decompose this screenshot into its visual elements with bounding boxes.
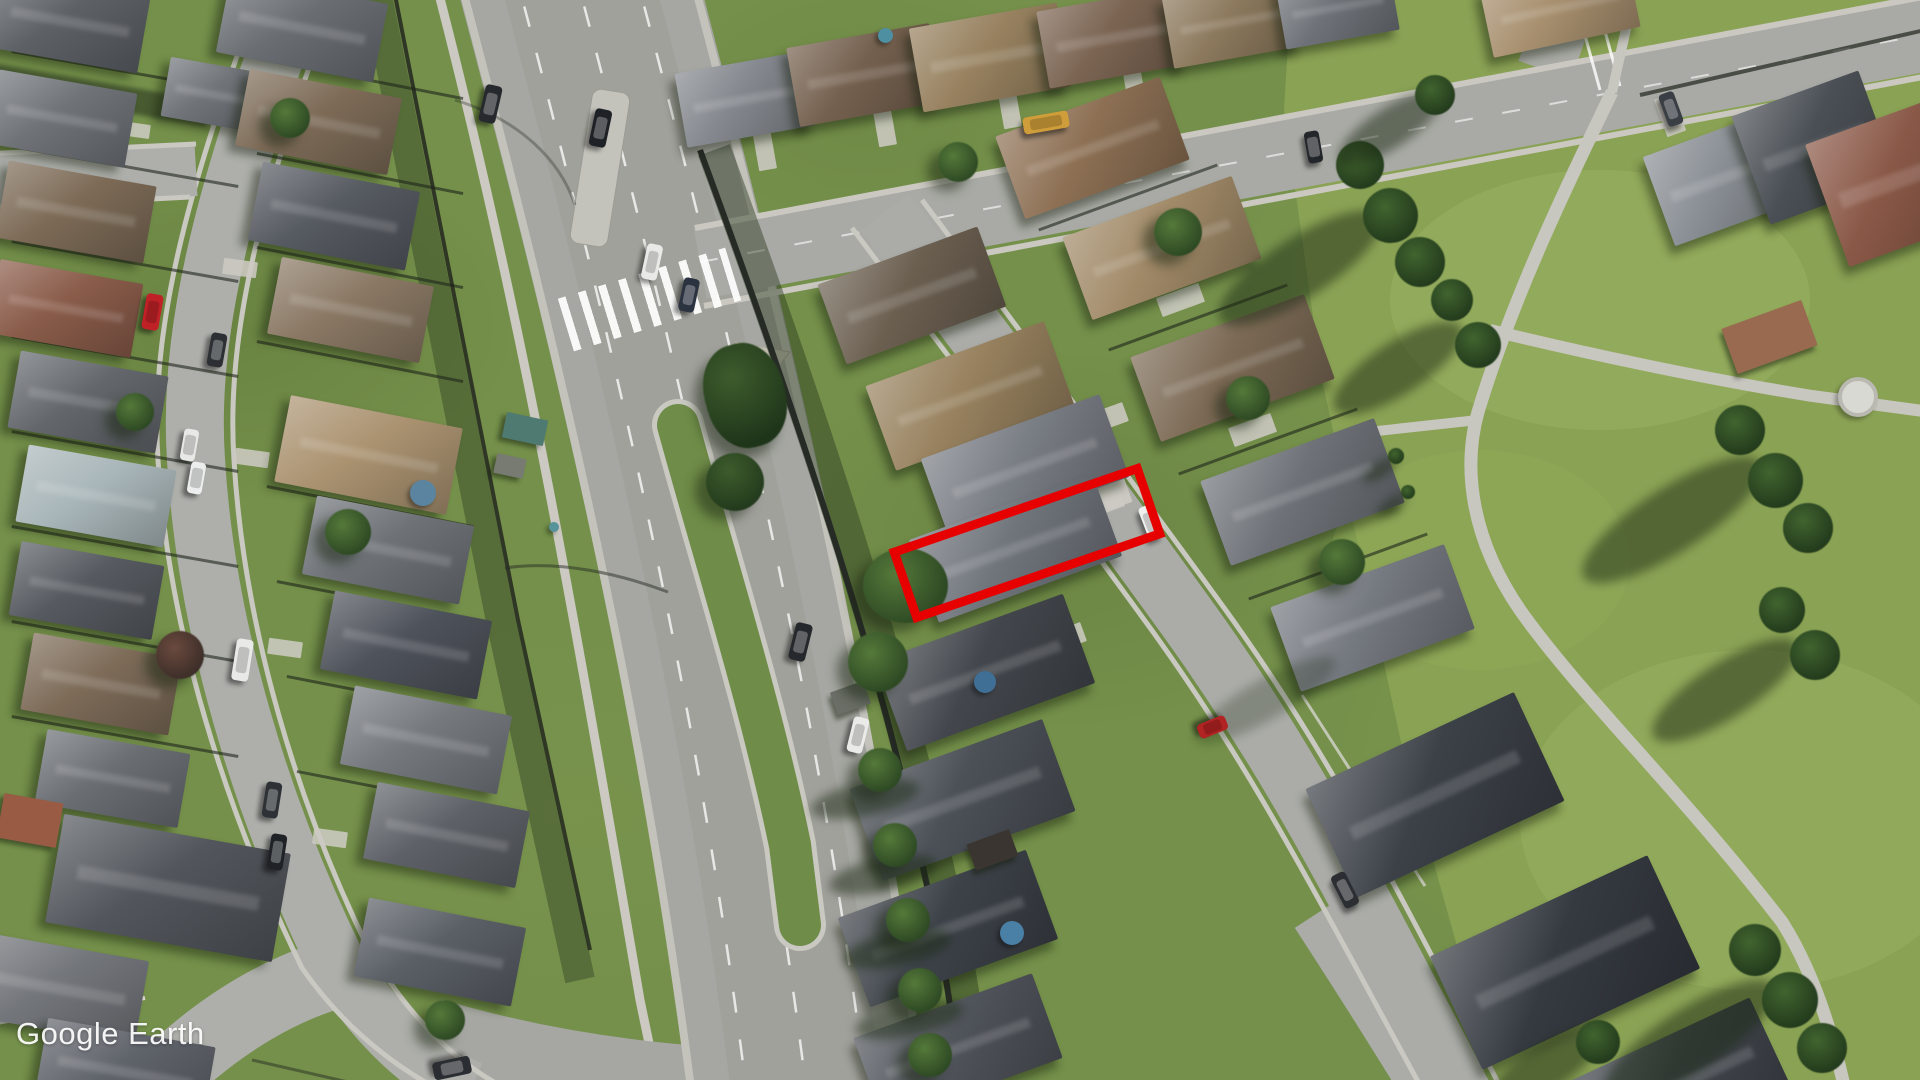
tree-canopy (873, 823, 917, 867)
residential-street (1330, 905, 1448, 1080)
conifer-tree (1762, 972, 1818, 1028)
tree-canopy (1154, 208, 1202, 256)
tree-canopy (938, 142, 978, 182)
pole-shadow (252, 1060, 348, 1080)
backyard-trampoline (410, 480, 436, 506)
backyard-pool (549, 522, 559, 532)
tree-canopy (1226, 376, 1270, 420)
conifer-tree (1715, 405, 1765, 455)
tree-canopy (425, 1000, 465, 1040)
tree-canopy (706, 453, 764, 511)
tree-canopy (270, 98, 310, 138)
conifer-tree (1748, 453, 1803, 508)
satellite-map-viewport[interactable]: Google Earth (0, 0, 1920, 1080)
backyard-pool (878, 28, 893, 43)
tree-canopy (325, 509, 371, 555)
conifer-tree (1576, 1020, 1620, 1064)
conifer-tree (1431, 279, 1473, 321)
conifer-tree (1395, 237, 1445, 287)
conifer-tree (1729, 924, 1781, 976)
tree-canopy (908, 1033, 952, 1077)
conifer-tree (1790, 630, 1840, 680)
tree-canopy (886, 898, 930, 942)
tree-canopy (1319, 539, 1365, 585)
conifer-tree (1363, 188, 1418, 243)
tree-canopy (848, 632, 908, 692)
tree-canopy (156, 631, 204, 679)
conifer-tree (1401, 485, 1415, 499)
conifer-tree (1388, 448, 1404, 464)
park-gazebo (1838, 377, 1878, 417)
conifer-tree (1797, 1023, 1847, 1073)
shed-roof (0, 793, 63, 848)
google-earth-watermark: Google Earth (16, 1016, 205, 1052)
tree-canopy (898, 968, 942, 1012)
tree-canopy (116, 393, 154, 431)
tree-canopy (858, 748, 902, 792)
conifer-tree (1415, 75, 1455, 115)
backyard-trampoline (1000, 921, 1024, 945)
backyard-trampoline (974, 671, 996, 693)
conifer-tree (1455, 322, 1501, 368)
conifer-tree (1759, 587, 1805, 633)
conifer-tree (1783, 503, 1833, 553)
